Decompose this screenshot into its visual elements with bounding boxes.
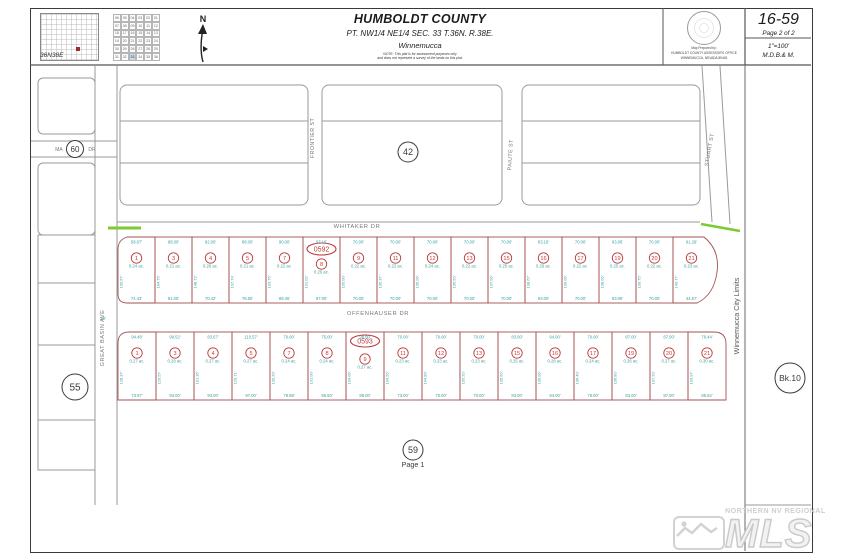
lot-number: 5 bbox=[246, 256, 249, 262]
lot-dim-side: 131.35' bbox=[195, 371, 200, 384]
lot-acreage: 0.28 ac. bbox=[548, 359, 563, 364]
lot-acreage: 0.23 ac. bbox=[434, 359, 449, 364]
lot-boundary bbox=[118, 237, 155, 303]
section-cell: 35 bbox=[144, 53, 152, 61]
lot-dim-top: 70.00' bbox=[435, 335, 446, 340]
ref-42-label: 42 bbox=[403, 147, 413, 157]
lot-boundary bbox=[673, 237, 717, 303]
lot-number: 20 bbox=[666, 351, 672, 357]
lot-boundary bbox=[536, 332, 574, 400]
lot-number: 15 bbox=[503, 256, 509, 262]
lot-dim-bottom: 70.00' bbox=[649, 296, 660, 301]
street-label-stuart: STUART ST bbox=[704, 133, 716, 167]
lot-dim-side: 136.50' bbox=[452, 275, 457, 288]
section-cell: 08 bbox=[121, 22, 129, 30]
lot-boundary bbox=[156, 332, 194, 400]
lot-dim-bottom: 70.00' bbox=[473, 393, 484, 398]
lot-dim-side: 128.37' bbox=[119, 371, 124, 384]
township-label: 36N38E bbox=[40, 52, 64, 59]
lot-dim-bottom: 70.00' bbox=[575, 296, 586, 301]
lot-dim-bottom: 91.05' bbox=[168, 296, 179, 301]
lot-dim-side: 138.67' bbox=[526, 275, 531, 288]
seal-prepared-by: Map Prepared by: bbox=[663, 46, 745, 50]
lot-dim-bottom: 93.00' bbox=[538, 296, 549, 301]
lot-dim-bottom: 78.50' bbox=[242, 296, 253, 301]
lot-number: 12 bbox=[429, 256, 435, 262]
lot-dim-bottom: 87.00' bbox=[663, 393, 674, 398]
street-label-frontier: FRONTIER ST bbox=[310, 118, 316, 159]
lot-acreage: 0.27 ac. bbox=[358, 365, 373, 370]
lot-dim-side: 138.00' bbox=[600, 275, 605, 288]
lot-boundary bbox=[612, 332, 650, 400]
section-cell: 11 bbox=[144, 22, 152, 30]
section-cell: 06 bbox=[113, 14, 121, 22]
lot-acreage: 0.22 ac. bbox=[277, 264, 292, 269]
lot-acreage: 0.24 ac. bbox=[320, 359, 335, 364]
lot-dim-bottom: 88.00' bbox=[359, 393, 370, 398]
section-cell: 28 bbox=[129, 45, 137, 53]
lot-dim-bottom: 93.00' bbox=[169, 393, 180, 398]
ref-59-label: 59 bbox=[408, 445, 418, 455]
lot-boundary bbox=[266, 237, 303, 303]
street-label-whitaker: WHITAKER DR bbox=[334, 224, 381, 230]
lot-dim-bottom: 93.06' bbox=[612, 296, 623, 301]
lot-number: 13 bbox=[476, 351, 482, 357]
lot-dim-side: 140.77' bbox=[674, 275, 679, 288]
lot-dim-top: 94.00' bbox=[549, 335, 560, 340]
lot-dim-top: 70.00' bbox=[473, 335, 484, 340]
north-arrow-head bbox=[198, 24, 207, 34]
lot-boundary bbox=[192, 237, 229, 303]
lot-dim-bottom: 78.00' bbox=[587, 393, 598, 398]
lot-dim-bottom: 70.00' bbox=[353, 296, 364, 301]
lot-dim-side: 139.75' bbox=[637, 275, 642, 288]
lot-dim-top: 70.00' bbox=[464, 240, 475, 245]
map-number-box: 16-59 Page 2 of 2 1"=100' M.D.B.& M. bbox=[745, 8, 812, 65]
lot-dim-side: 133.97' bbox=[689, 371, 694, 384]
lot-dim-side: 104.75' bbox=[156, 275, 161, 288]
lot-number: 21 bbox=[704, 351, 710, 357]
section-cell: 03 bbox=[136, 14, 144, 22]
lot-dim-bottom: 97.00' bbox=[316, 296, 327, 301]
lot-dim-side: 133.75' bbox=[267, 275, 272, 288]
lot-dim-top: 63.16' bbox=[538, 240, 549, 245]
seal-address: WINNEMUCCA, NEVADA 89445 bbox=[663, 56, 745, 60]
lot-dim-bottom: 70.00' bbox=[390, 296, 401, 301]
lot-dim-top: 70.00' bbox=[390, 240, 401, 245]
lot-dim-bottom: 79.98' bbox=[283, 393, 294, 398]
lot-number: 11 bbox=[400, 351, 406, 357]
lot-acreage: 0.26 ac. bbox=[203, 264, 218, 269]
lot-number: 21 bbox=[688, 256, 694, 262]
lot-boundary bbox=[384, 332, 422, 400]
lot-dim-bottom: 70.00' bbox=[427, 296, 438, 301]
west-block bbox=[38, 235, 95, 283]
meridian-label: M.D.B.& M. bbox=[745, 52, 812, 59]
lot-acreage: 0.26 ac. bbox=[536, 264, 551, 269]
lot-acreage: 0.23 ac. bbox=[472, 359, 487, 364]
lot-dim-top: 94.48' bbox=[131, 335, 142, 340]
section-cell: 02 bbox=[144, 14, 152, 22]
section-cell: 15 bbox=[136, 30, 144, 38]
lot-acreage: 0.25 ac. bbox=[510, 359, 525, 364]
section-cell: 20 bbox=[121, 37, 129, 45]
lot-dim-top: 90.00' bbox=[279, 240, 290, 245]
lot-dim-top: 88.00' bbox=[168, 240, 179, 245]
assessor-seal-icon bbox=[687, 11, 721, 45]
section-cell: 13 bbox=[152, 30, 160, 38]
lot-dim-top: 91.29' bbox=[686, 240, 697, 245]
section-cell: 09 bbox=[129, 22, 137, 30]
north-arrow: N bbox=[190, 12, 214, 64]
lot-dim-side: 134.80' bbox=[423, 371, 428, 384]
lot-dim-top: 110.57' bbox=[244, 335, 257, 340]
section-cell: 25 bbox=[152, 45, 160, 53]
section-cell: 31 bbox=[113, 53, 121, 61]
section-cell: 23 bbox=[144, 37, 152, 45]
lot-number: 19 bbox=[628, 351, 634, 357]
lot-acreage: 0.21 ac. bbox=[166, 264, 181, 269]
lot-dim-top: 82.00' bbox=[205, 240, 216, 245]
lot-boundary bbox=[155, 237, 192, 303]
lot-dim-top: 83.00' bbox=[511, 335, 522, 340]
lot-dim-bottom: 97.00' bbox=[245, 393, 256, 398]
section-cell: 14 bbox=[144, 30, 152, 38]
lot-dim-bottom: 89.45' bbox=[279, 296, 290, 301]
street-label-fragment: MA bbox=[55, 147, 63, 153]
lot-boundary bbox=[498, 332, 536, 400]
lot-boundary bbox=[232, 332, 270, 400]
west-block bbox=[38, 420, 95, 470]
lot-boundary bbox=[451, 237, 488, 303]
plat-map-drawing: Winnemucca City LimitsMADR6055GREAT BASI… bbox=[0, 0, 841, 560]
seal-office: HUMBOLDT COUNTY ASSESSOR'S OFFICE bbox=[663, 51, 745, 55]
lot-dim-side: 129.57' bbox=[157, 371, 162, 384]
page-1-label: Page 1 bbox=[402, 460, 425, 469]
lot-number: 8 bbox=[325, 351, 328, 357]
section-cell: 10 bbox=[136, 22, 144, 30]
lot-dim-top: 58.67' bbox=[131, 240, 142, 245]
map-scale: 1"=100' bbox=[745, 43, 812, 50]
lot-dim-bottom: 93.00' bbox=[207, 393, 218, 398]
lot-dim-side: 137.00' bbox=[489, 275, 494, 288]
lot-number: 8 bbox=[320, 262, 323, 268]
lot-number: 3 bbox=[173, 351, 176, 357]
lot-acreage: 0.25 ac. bbox=[314, 270, 329, 275]
subdivision-number: 0592 bbox=[314, 246, 330, 253]
street-width-note: 30' bbox=[100, 316, 106, 321]
north-arrow-shaft bbox=[201, 30, 203, 62]
north-arrow-flag bbox=[203, 46, 208, 52]
lot-dim-top: 83.67' bbox=[207, 335, 218, 340]
lot-boundary bbox=[308, 332, 346, 400]
lot-acreage: 0.22 ac. bbox=[573, 264, 588, 269]
lot-dim-bottom: 73.97' bbox=[131, 393, 142, 398]
lot-dim-side: 129.71' bbox=[233, 371, 238, 384]
lot-dim-top: 88.00' bbox=[242, 240, 253, 245]
section-cell: 24 bbox=[152, 37, 160, 45]
section-cell: 05 bbox=[121, 14, 129, 22]
lot-acreage: 0.27 ac. bbox=[206, 359, 221, 364]
north-label: N bbox=[200, 14, 207, 24]
section-cell: 33 bbox=[129, 53, 137, 61]
lot-acreage: 0.22 ac. bbox=[351, 264, 366, 269]
lot-acreage: 0.23 ac. bbox=[396, 359, 411, 364]
page-indicator: Page 2 of 2 bbox=[745, 30, 812, 37]
lot-boundary bbox=[270, 332, 308, 400]
lot-dim-side: 148.72' bbox=[193, 275, 198, 288]
lot-dim-side: 137.20' bbox=[651, 371, 656, 384]
street-label-paiute: PAIUTE ST bbox=[507, 139, 515, 171]
section-cell: 22 bbox=[136, 37, 144, 45]
lot-number: 1 bbox=[135, 351, 138, 357]
lot-number: 9 bbox=[363, 357, 366, 363]
lot-dim-side: 136.00' bbox=[537, 371, 542, 384]
lot-dim-bottom: 94.00' bbox=[549, 393, 560, 398]
lot-boundary bbox=[574, 332, 612, 400]
section-cell: 32 bbox=[121, 53, 129, 61]
lot-dim-side: 134.00' bbox=[347, 371, 352, 384]
legal-description: PT. NW1/4 NE1/4 SEC. 33 T.36N. R.38E. bbox=[255, 29, 585, 38]
lot-dim-bottom: 83.00' bbox=[511, 393, 522, 398]
section-cell: 12 bbox=[152, 22, 160, 30]
lot-acreage: 0.26 ac. bbox=[624, 359, 639, 364]
section-cell: 29 bbox=[121, 45, 129, 53]
lot-number: 7 bbox=[287, 351, 290, 357]
lot-acreage: 0.28 ac. bbox=[168, 359, 183, 364]
lot-dim-side: 136.00' bbox=[415, 275, 420, 288]
section-cell: 36 bbox=[152, 53, 160, 61]
lot-dim-bottom: 70.00' bbox=[464, 296, 475, 301]
lot-dim-top: 93.06' bbox=[612, 240, 623, 245]
street-edge-stuart bbox=[720, 66, 730, 224]
lot-boundary bbox=[525, 237, 562, 303]
lot-acreage: 0.30 ac. bbox=[700, 359, 715, 364]
lot-boundary bbox=[688, 332, 726, 400]
section-cell: 30 bbox=[113, 45, 121, 53]
lot-number: 4 bbox=[211, 351, 214, 357]
city-name: Winnemucca bbox=[255, 41, 585, 50]
lot-dim-bottom: 85.52' bbox=[701, 393, 712, 398]
section-cell: 27 bbox=[136, 45, 144, 53]
lot-boundary bbox=[599, 237, 636, 303]
lot-dim-top: 70.00' bbox=[397, 335, 408, 340]
section-cell: 18 bbox=[113, 30, 121, 38]
lot-dim-top: 70.00' bbox=[353, 240, 364, 245]
lot-acreage: 0.24 ac. bbox=[129, 264, 144, 269]
section-location-dot bbox=[76, 47, 80, 51]
lot-number: 17 bbox=[590, 351, 596, 357]
lot-boundary bbox=[460, 332, 498, 400]
lot-number: 9 bbox=[357, 256, 360, 262]
lot-number: 17 bbox=[577, 256, 583, 262]
lot-number: 5 bbox=[249, 351, 252, 357]
lot-boundary bbox=[194, 332, 232, 400]
lot-dim-top: 70.00' bbox=[649, 240, 660, 245]
lot-dim-bottom: 44.57' bbox=[686, 296, 697, 301]
lot-acreage: 0.22 ac. bbox=[462, 264, 477, 269]
lot-acreage: 0.25 ac. bbox=[499, 264, 514, 269]
lot-dim-side: 130.20' bbox=[271, 371, 276, 384]
lot-dim-side: 100.57' bbox=[119, 275, 124, 288]
street-label-offenhauser: OFFENHAUSER DR bbox=[347, 311, 409, 317]
lot-boundary bbox=[636, 237, 673, 303]
section-cell: 07 bbox=[113, 22, 121, 30]
lot-boundary bbox=[377, 237, 414, 303]
lot-number: 15 bbox=[514, 351, 520, 357]
section-cell: 26 bbox=[144, 45, 152, 53]
lot-dim-side: 135.20' bbox=[461, 371, 466, 384]
county-title: HUMBOLDT COUNTY bbox=[255, 12, 585, 26]
lot-acreage: 0.23 ac. bbox=[684, 264, 699, 269]
ref-55-label: 55 bbox=[69, 383, 81, 394]
lot-acreage: 0.27 ac. bbox=[244, 359, 259, 364]
lot-dim-top: 70.00' bbox=[575, 240, 586, 245]
lot-dim-side: 131.02' bbox=[304, 275, 309, 288]
lot-acreage: 0.27 ac. bbox=[662, 359, 677, 364]
section-cell: 04 bbox=[129, 14, 137, 22]
lot-dim-top: 97.16' bbox=[316, 240, 327, 245]
lot-dim-side: 135.00' bbox=[341, 275, 346, 288]
lot-number: 20 bbox=[651, 256, 657, 262]
lot-boundary bbox=[422, 332, 460, 400]
lot-acreage: 0.25 ac. bbox=[610, 264, 625, 269]
lot-dim-bottom: 73.00' bbox=[397, 393, 408, 398]
city-limits-label: Winnemucca City Limits bbox=[732, 277, 741, 354]
lot-dim-bottom: 85.50' bbox=[321, 393, 332, 398]
map-number: 16-59 bbox=[745, 11, 812, 29]
lot-number: 19 bbox=[614, 256, 620, 262]
section-cell: 01 bbox=[152, 14, 160, 22]
section-cell: 16 bbox=[129, 30, 137, 38]
lot-boundary bbox=[118, 332, 156, 400]
ref-bk10-label: Bk.10 bbox=[779, 373, 801, 383]
lot-dim-side: 135.37' bbox=[378, 275, 383, 288]
lot-boundary bbox=[414, 237, 451, 303]
lot-dim-top: 98.00' bbox=[359, 335, 370, 340]
lot-number: 13 bbox=[466, 256, 472, 262]
section-cell: 17 bbox=[121, 30, 129, 38]
lot-acreage: 0.22 ac. bbox=[647, 264, 662, 269]
lot-boundary bbox=[650, 332, 688, 400]
assessment-note: NOTE: This plat is for assessment purpos… bbox=[255, 52, 585, 60]
lot-number: 16 bbox=[552, 351, 558, 357]
lot-dim-side: 134.50' bbox=[385, 371, 390, 384]
section-cell: 34 bbox=[136, 53, 144, 61]
lot-dim-side: 139.00' bbox=[563, 275, 568, 288]
lot-dim-side: 135.60' bbox=[499, 371, 504, 384]
lot-number: 1 bbox=[135, 256, 138, 262]
lot-dim-top: 70.00' bbox=[427, 240, 438, 245]
west-block bbox=[38, 78, 95, 134]
lot-dim-top: 87.00' bbox=[625, 335, 636, 340]
west-block bbox=[38, 283, 95, 345]
lot-dim-top: 70.00' bbox=[587, 335, 598, 340]
lot-number: 11 bbox=[393, 256, 399, 262]
lot-dim-top: 76.44' bbox=[701, 335, 712, 340]
lot-boundary bbox=[229, 237, 266, 303]
north-block-c bbox=[522, 85, 700, 205]
ref-60-label: 60 bbox=[71, 145, 80, 154]
lot-dim-bottom: 74.43' bbox=[131, 296, 142, 301]
lot-dim-top: 70.00' bbox=[283, 335, 294, 340]
lot-boundary bbox=[488, 237, 525, 303]
lot-acreage: 0.24 ac. bbox=[282, 359, 297, 364]
lot-number: 16 bbox=[540, 256, 546, 262]
lot-dim-bottom: 70.00' bbox=[501, 296, 512, 301]
lot-dim-side: 136.40' bbox=[575, 371, 580, 384]
north-block-a bbox=[120, 85, 308, 205]
lot-dim-top: 87.00' bbox=[663, 335, 674, 340]
lot-dim-top: 70.00' bbox=[501, 240, 512, 245]
lot-acreage: 0.24 ac. bbox=[586, 359, 601, 364]
lot-dim-bottom: 70.00' bbox=[435, 393, 446, 398]
lot-acreage: 0.27 ac. bbox=[130, 359, 145, 364]
lot-number: 7 bbox=[283, 256, 286, 262]
lot-number: 12 bbox=[438, 351, 444, 357]
lot-boundary bbox=[340, 237, 377, 303]
lot-dim-top: 75.00' bbox=[321, 335, 332, 340]
lot-acreage: 0.24 ac. bbox=[425, 264, 440, 269]
lot-number: 3 bbox=[172, 256, 175, 262]
section-cell: 19 bbox=[113, 37, 121, 45]
section-number-grid: 0605040302010708091011121817161514131920… bbox=[113, 14, 160, 61]
lot-acreage: 0.22 ac. bbox=[388, 264, 403, 269]
west-block bbox=[38, 163, 95, 235]
lot-dim-side: 131.00' bbox=[309, 371, 314, 384]
lot-boundary bbox=[562, 237, 599, 303]
lot-acreage: 0.21 ac. bbox=[240, 264, 255, 269]
lot-dim-top: 99.52' bbox=[169, 335, 180, 340]
lot-dim-side: 137.74' bbox=[230, 275, 235, 288]
lot-number: 4 bbox=[209, 256, 212, 262]
lot-dim-side: 136.80' bbox=[613, 371, 618, 384]
section-cell: 21 bbox=[129, 37, 137, 45]
lot-dim-bottom: 83.00' bbox=[625, 393, 636, 398]
lot-dim-bottom: 70.42' bbox=[205, 296, 216, 301]
green-highlight-right bbox=[701, 224, 740, 231]
title-block: HUMBOLDT COUNTY PT. NW1/4 NE1/4 SEC. 33 … bbox=[255, 12, 585, 60]
assessor-seal-box: Map Prepared by: HUMBOLDT COUNTY ASSESSO… bbox=[663, 8, 745, 65]
